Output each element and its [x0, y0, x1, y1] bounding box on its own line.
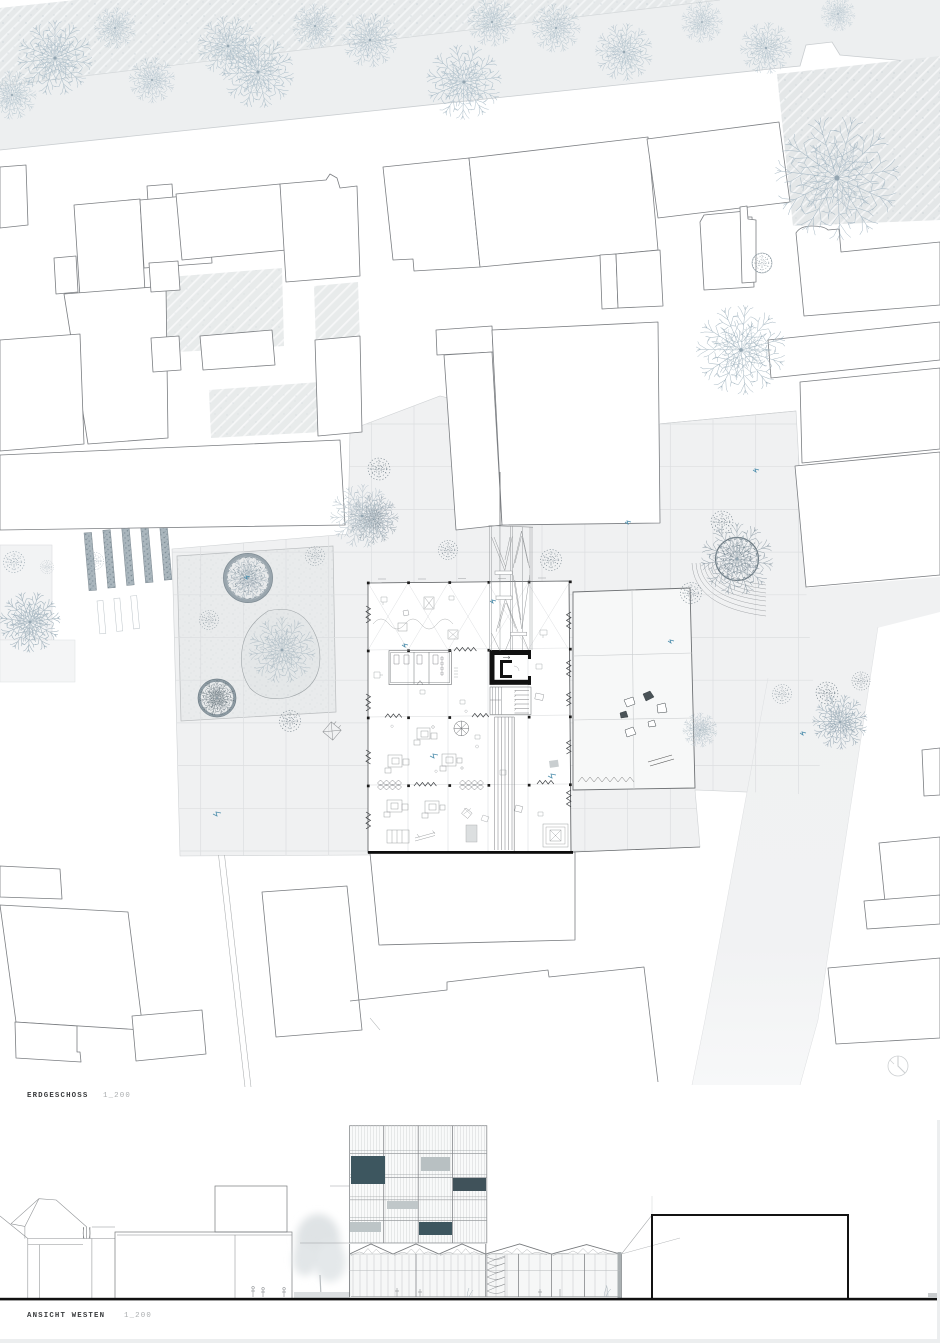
svg-text:1_200: 1_200 — [124, 1312, 152, 1320]
svg-text:1_200: 1_200 — [103, 1092, 131, 1100]
svg-text:ANSICHT WESTEN: ANSICHT WESTEN — [27, 1312, 105, 1320]
svg-text:ERDGESCHOSS: ERDGESCHOSS — [27, 1092, 88, 1100]
